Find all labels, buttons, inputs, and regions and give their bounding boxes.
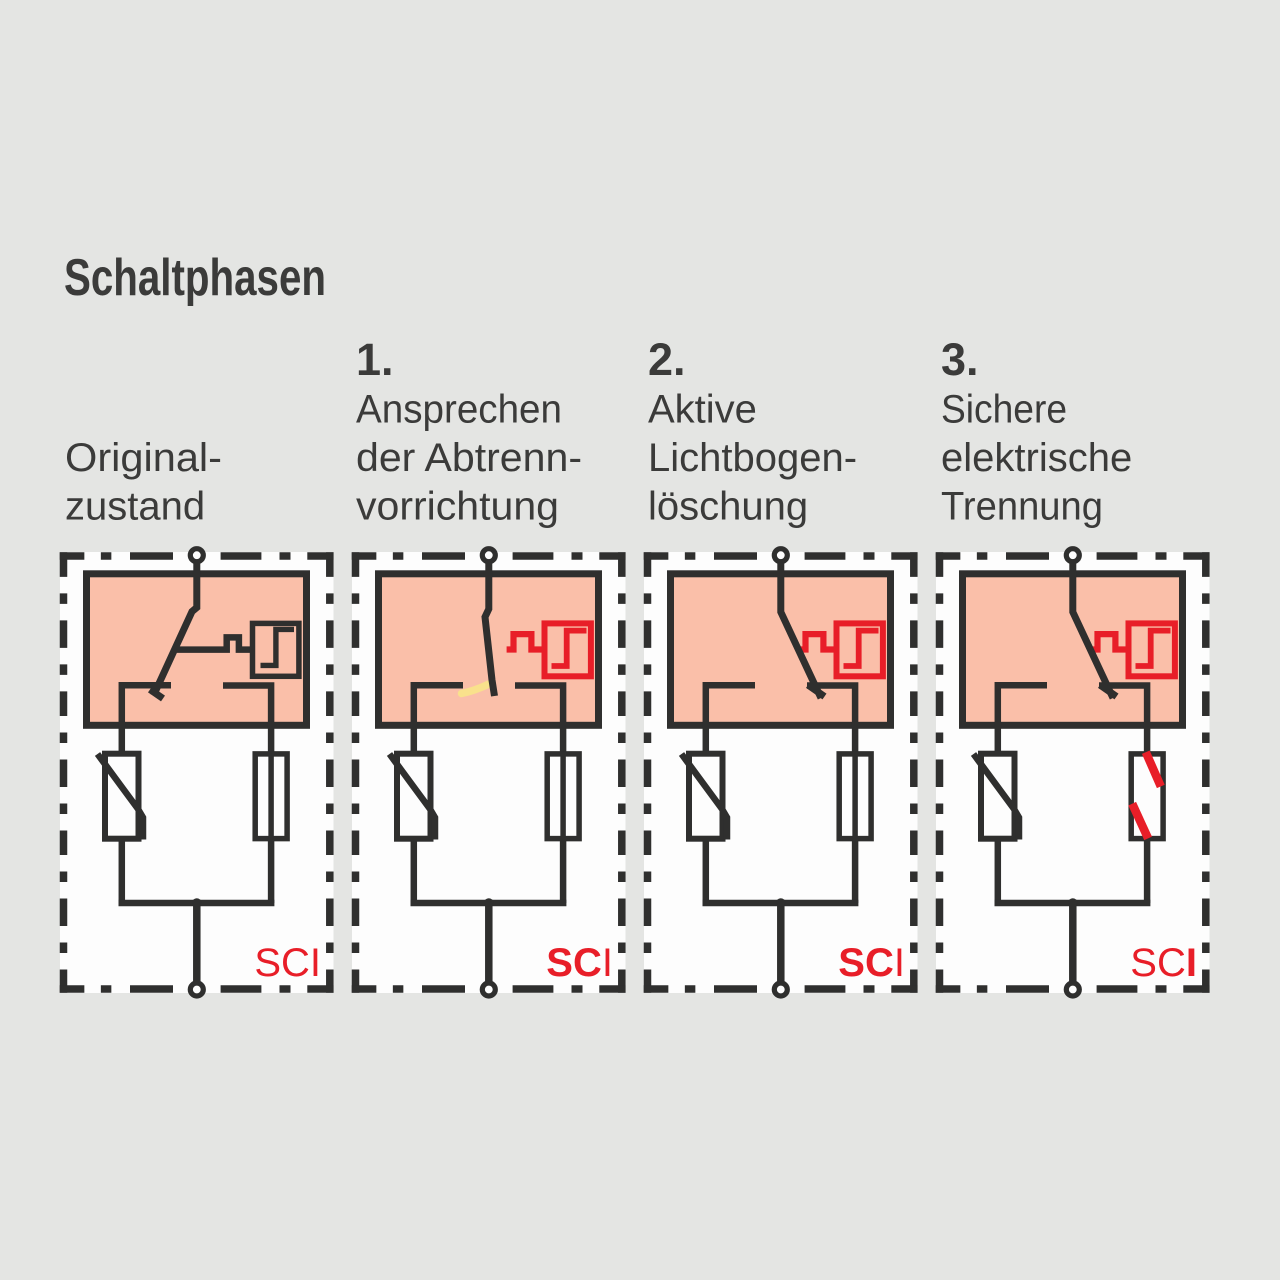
- svg-text:elektrische: elektrische: [941, 436, 1132, 480]
- svg-text:Ansprechen: Ansprechen: [356, 388, 562, 432]
- svg-text:vorrichtung: vorrichtung: [356, 485, 559, 529]
- svg-text:SCI: SCI: [838, 941, 905, 985]
- svg-text:1.: 1.: [356, 334, 394, 385]
- svg-text:der Abtrenn-: der Abtrenn-: [356, 436, 582, 480]
- svg-text:Aktive: Aktive: [648, 388, 757, 432]
- svg-text:2.: 2.: [648, 334, 686, 385]
- svg-text:Schaltphasen: Schaltphasen: [64, 249, 326, 307]
- svg-text:SCI: SCI: [1130, 941, 1197, 985]
- svg-text:SCI: SCI: [254, 941, 321, 985]
- svg-text:3.: 3.: [941, 334, 979, 385]
- svg-text:zustand: zustand: [65, 485, 205, 529]
- svg-text:löschung: löschung: [648, 485, 808, 529]
- svg-text:Sichere: Sichere: [941, 388, 1067, 432]
- svg-text:SCI: SCI: [546, 941, 613, 985]
- svg-text:Original-: Original-: [65, 436, 222, 480]
- svg-text:Trennung: Trennung: [941, 485, 1103, 529]
- svg-text:Lichtbogen-: Lichtbogen-: [648, 436, 857, 480]
